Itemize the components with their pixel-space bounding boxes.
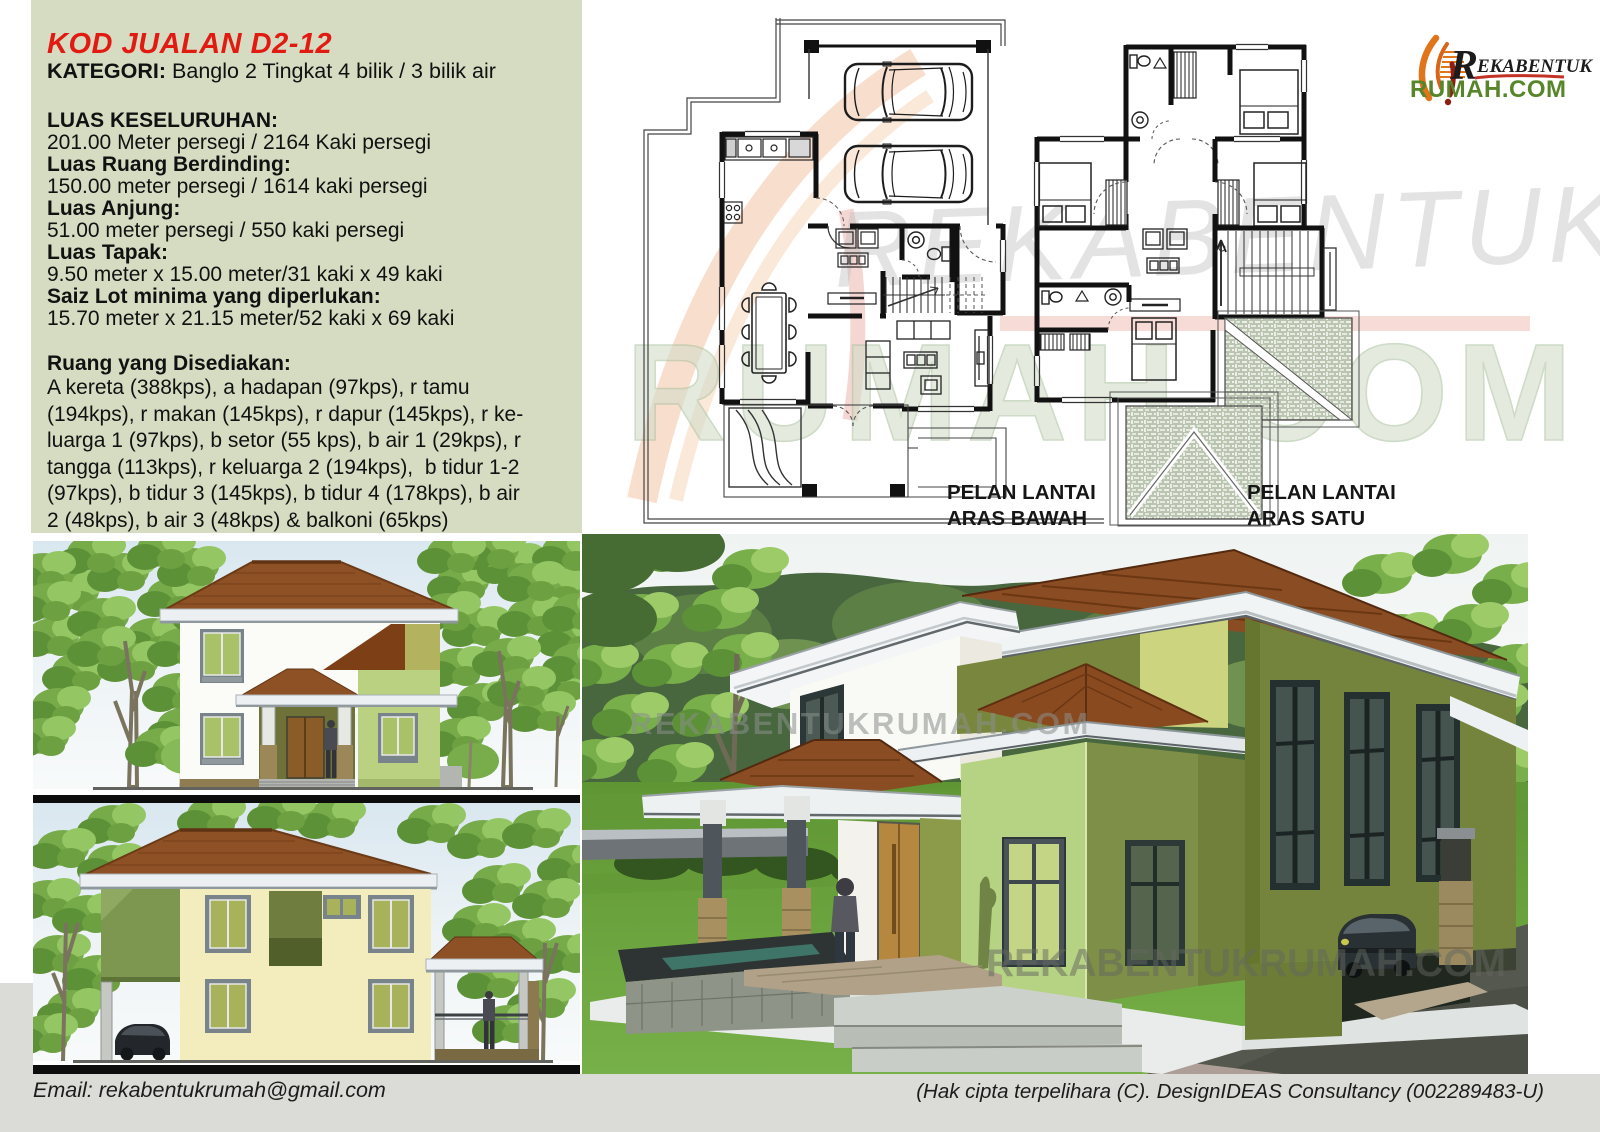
svg-text:PELAN LANTAI: PELAN LANTAI [1247, 481, 1396, 504]
svg-text:REKABENTUKRUMAH.COM: REKABENTUKRUMAH.COM [630, 706, 1091, 741]
svg-text:PELAN LANTAI: PELAN LANTAI [947, 481, 1096, 504]
svg-text:EKABENTUK: EKABENTUK [1476, 56, 1593, 77]
svg-text:RUMAH.COM: RUMAH.COM [626, 316, 1581, 470]
svg-text:RUMAH.COM: RUMAH.COM [1410, 76, 1566, 103]
svg-text:REKABENTUKRUMAH.COM: REKABENTUKRUMAH.COM [986, 942, 1506, 985]
svg-text:ARAS SATU: ARAS SATU [1247, 507, 1365, 530]
svg-text:ARAS BAWAH: ARAS BAWAH [947, 507, 1087, 530]
